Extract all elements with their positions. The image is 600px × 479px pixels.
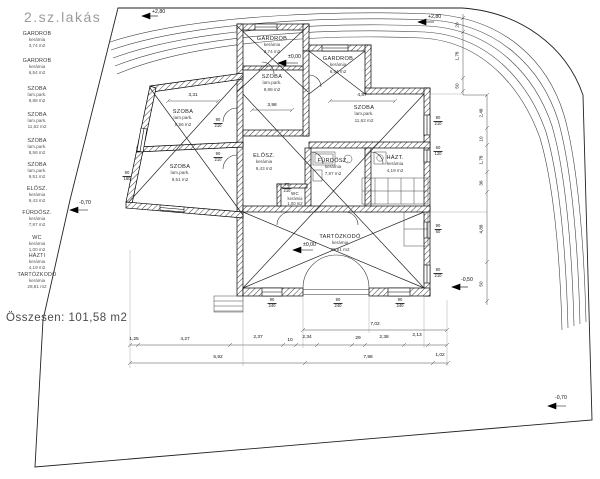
dim-234: 2,34 <box>302 335 311 340</box>
elevation-minus070-bottom: -0,70 <box>555 395 567 401</box>
site-boundary <box>35 8 592 467</box>
dim-10: 10 <box>287 338 292 343</box>
elevation-plus280-left: +2,80 <box>152 9 165 15</box>
room-label-szoba-1162: SZOBAlam.park.11,62 m2 <box>354 105 374 124</box>
vdim-36: 36 <box>479 180 484 185</box>
legend-item-szoba-2: SZOBAlam.park.11,62 m2 <box>0 112 74 131</box>
vdim-178b: 1,78 <box>479 156 484 165</box>
legend-item-furdosz: FÜRDŐSZ.kerámia7,87 m2 <box>0 210 74 229</box>
vdim-488: 4,88 <box>479 225 484 234</box>
elevation-minus050: -0,50 <box>461 277 473 283</box>
legend-item-gardrob-2: GARDROBkerámia6,54 m2 <box>0 58 74 77</box>
dim-237: 2,37 <box>253 335 262 340</box>
dim-398: 3,98 <box>267 103 276 108</box>
vdim-20: 20 <box>455 22 460 27</box>
room-label-elosz: ELŐSZ.kerámia9,43 m2 <box>253 153 275 172</box>
door-size-9: 90240 <box>396 298 405 309</box>
dim-798: 7,98 <box>363 355 372 360</box>
door-size-6: 90210 <box>434 268 443 279</box>
vdim-248: 2,48 <box>479 109 484 118</box>
room-label-furdosz: FÜRDŐSZ.kerámia7,87 m2 <box>318 158 349 177</box>
dim-125: 1,25 <box>129 337 138 342</box>
elevation-plus280-right: +2,80 <box>428 14 441 20</box>
room-label-tartozkodo: TARTÓZKODÓkerámia28,81 m2 <box>319 234 360 253</box>
dim-102: 1,02 <box>435 353 444 358</box>
room-label-gardrob-2: GARDROBkerámia6,54 m2 <box>323 56 353 75</box>
door-size-0: 90210 <box>214 118 223 129</box>
dim-487: 4,87 <box>357 93 366 98</box>
legend-item-szoba-1: SZOBAlam.park.9,88 m2 <box>0 86 74 105</box>
legend-item-gardrob-1: GARDROBkerámia3,74 m2 <box>0 31 74 50</box>
room-label-szoba-856: SZOBAlam.park.8,56 m2 <box>173 109 193 128</box>
dim-238: 2,38 <box>379 335 388 340</box>
dim-427: 4,27 <box>180 337 189 342</box>
roof-diagonals <box>128 26 424 288</box>
dim-702: 7,02 <box>370 322 379 327</box>
site-plan-drawing <box>0 0 600 479</box>
building-walls <box>126 24 430 296</box>
dim-592: 5,92 <box>213 355 222 360</box>
vdim-50a: 50 <box>455 83 460 88</box>
door-size-5: 9060 <box>435 224 442 235</box>
legend-item-hazti: HÁZTIkerámia4,19 m2 <box>0 253 74 272</box>
room-label-hazt: HÁZT.kerámia4,19 m2 <box>386 155 403 174</box>
door-size-8: 90240 <box>334 298 343 309</box>
dim-331: 3,31 <box>188 93 197 98</box>
dim-29: 29 <box>355 336 360 341</box>
room-label-szoba-951: SZOBAlam.park.9,51 m2 <box>170 164 190 183</box>
legend-item-wc: WCkerámia1,00 m2 <box>0 235 74 254</box>
total-area-label: Összesen: 101,58 m2 <box>6 312 127 324</box>
legend-item-szoba-4: SZOBAlam.park.9,51 m2 <box>0 162 74 181</box>
vdim-10: 10 <box>479 136 484 141</box>
vdim-50b: 50 <box>479 281 484 286</box>
page-title: 2.sz.lakás <box>24 9 101 25</box>
door-size-7: 90240 <box>268 298 277 309</box>
room-label-gardrob-1: GARDROBkerámia3,74 m2 <box>257 36 287 55</box>
room-label-szoba-988: SZOBAlam.park.9,88 m2 <box>262 74 282 93</box>
elevation-minus070-left: -0,70 <box>79 200 91 206</box>
legend-item-szoba-3: SZOBAlam.park.8,56 m2 <box>0 138 74 157</box>
dim-213: 2,13 <box>412 333 421 338</box>
door-size-2: 75210 <box>283 183 292 194</box>
door-size-3: 90210 <box>434 116 443 127</box>
elevation-zero-living: ±0,00 <box>303 242 316 248</box>
floor-plan-page: { "title": "2.sz.lakás", "total_label": … <box>0 0 600 479</box>
door-size-4: 60120 <box>434 146 443 157</box>
door-size-10: 90180 <box>123 171 132 182</box>
vdim-178a: 1,78 <box>455 52 460 61</box>
legend-item-elosz: ELŐSZ.kerámia9,43 m2 <box>0 186 74 205</box>
legend-item-tartozkodo: TARTÓZKODÓkerámia28,81 m2 <box>0 272 74 291</box>
door-size-1: 90210 <box>214 152 223 163</box>
elevation-zero-top: ±0,00 <box>288 54 301 60</box>
